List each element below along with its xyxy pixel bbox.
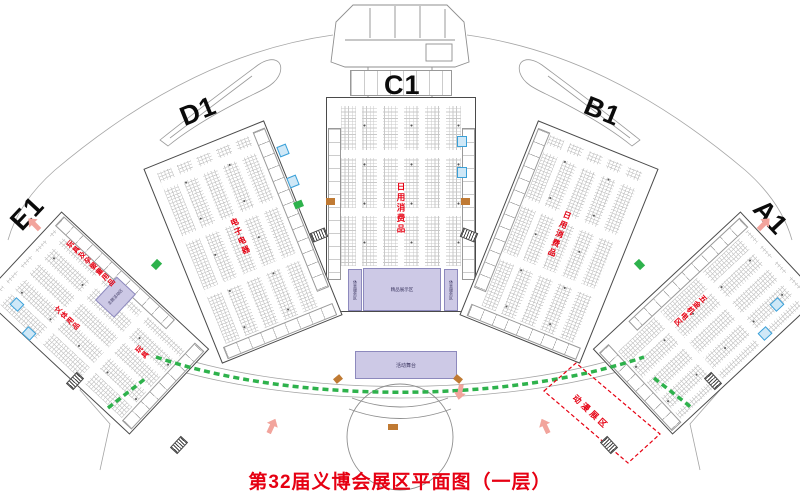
c1-center-zone: 精品展示区 bbox=[363, 268, 441, 311]
service-orange-block bbox=[461, 198, 470, 205]
service-orange-block bbox=[326, 198, 335, 205]
c1-right-zone: 休息服务区 bbox=[444, 269, 458, 311]
service-orange-block bbox=[388, 424, 398, 430]
c1-left-zone: 休息服务区 bbox=[348, 269, 362, 311]
stage-block: 活动舞台 bbox=[355, 351, 457, 379]
lobby-room bbox=[426, 44, 452, 61]
page-title: 第32届义博会展区平面图（一层） bbox=[0, 467, 800, 494]
hall-c1[interactable]: 精品展示区 休息服务区 休息服务区 日用消费品 bbox=[326, 97, 476, 312]
plaza-arc-1 bbox=[352, 398, 448, 407]
hall-c1-label: C1 bbox=[384, 70, 421, 101]
restroom-blue-block bbox=[457, 136, 467, 147]
floor-plan: 精品展示区 休息服务区 休息服务区 日用消费品 电子电器 日用消费品 主题活动区… bbox=[0, 0, 800, 497]
c1-category: 日用消费品 bbox=[395, 182, 407, 235]
plaza-arc-2 bbox=[349, 409, 451, 419]
restroom-blue-block bbox=[457, 167, 467, 178]
